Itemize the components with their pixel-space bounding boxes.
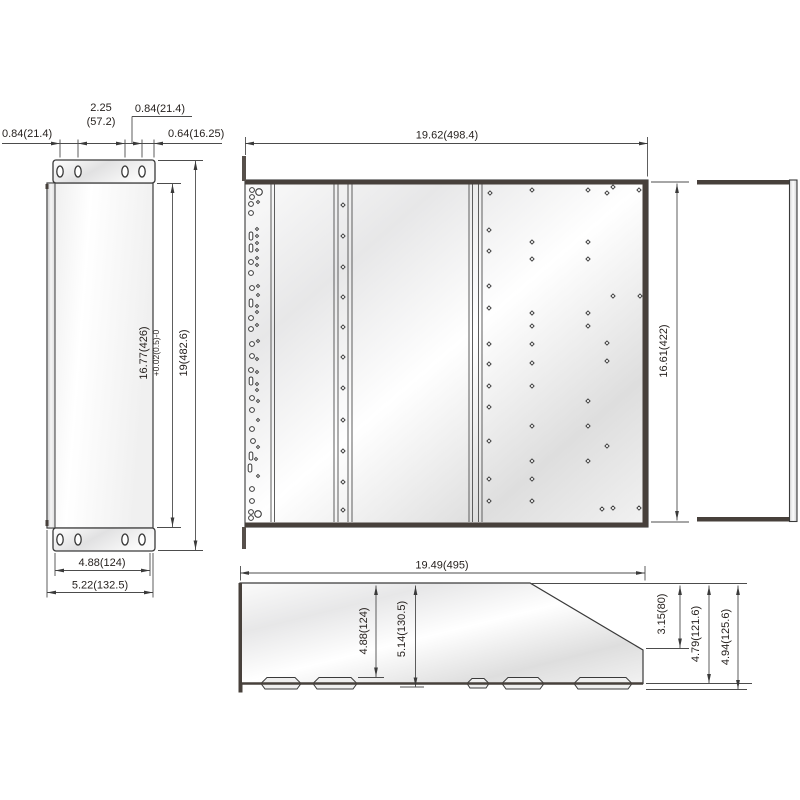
engineering-drawing-canvas: 0.84(21.4) 2.25 (57.2) 0.84(21.4) 0.64(1… [0, 0, 800, 800]
rail-hole [249, 202, 254, 207]
dim-opening-tolerance-label: +0.02(0.5)-0 [151, 329, 161, 376]
flange-slot-hole [122, 166, 128, 177]
rail-hole [249, 260, 254, 265]
rail-hole [249, 316, 254, 321]
dim-hole-pitch-label: 2.25 [90, 102, 111, 114]
rail-hole [249, 271, 254, 276]
rail-hole [250, 396, 255, 401]
profile-left-edge [239, 583, 243, 684]
rail-hole [249, 510, 254, 515]
dim-profile-mid-label: 5.14(130.5) [396, 601, 408, 657]
flange-slot-hole [57, 166, 63, 177]
front-right-edge [643, 180, 649, 527]
rail-hole [250, 188, 255, 193]
left-view-corner-notch-bottom [46, 520, 49, 526]
rail-hole-large [256, 189, 263, 196]
rail-slot [248, 464, 252, 472]
rail-hole [250, 286, 255, 291]
dim-profile-step-label: 3.15(80) [656, 594, 668, 635]
dim-front-height-label: 16.61(422) [658, 324, 670, 377]
rail-hole [249, 516, 254, 521]
rail-hole [250, 195, 255, 200]
rail-slot [249, 244, 253, 252]
rail-hole [249, 368, 254, 373]
rail-hole [250, 427, 255, 432]
profile-left-foot [239, 684, 243, 693]
dim-flange-width-label: 4.88(124) [78, 557, 125, 569]
dim-hole-pitch-mm-label: (57.2) [87, 116, 116, 128]
dim-opening-label: 16.77(426) [138, 326, 150, 379]
flange-slot-hole [139, 534, 145, 545]
rail-hole [250, 408, 255, 413]
dim-profile-inner-label: 4.88(124) [358, 607, 370, 654]
rail-slot [249, 452, 253, 460]
dim-profile-right-label: 4.79(121.6) [690, 606, 702, 662]
rail-hole [251, 439, 256, 444]
flange-slot-hole [75, 166, 81, 177]
rail-hole [250, 354, 255, 359]
rail-hole [249, 327, 254, 332]
front-left-tab-bottom [242, 527, 246, 549]
rail-hole [250, 342, 255, 347]
flange-slot-hole [57, 534, 63, 545]
front-top-edge [245, 180, 648, 185]
dim-profile-width-label: 19.49(495) [415, 560, 468, 572]
dim-overall-height-label: 19(482.6) [178, 329, 190, 376]
flange-slot-hole [75, 534, 81, 545]
dim-front-width-label: 19.62(498.4) [416, 130, 478, 142]
left-view-bend-strip [47, 183, 55, 528]
front-panel [245, 180, 648, 527]
dim-hole-top-label: 0.84(21.4) [135, 103, 185, 115]
channel-side-bar [790, 180, 798, 522]
dim-profile-overall-label: 4.94(125.6) [720, 609, 732, 665]
channel-top-edge [697, 180, 796, 185]
dim-hole-left-label: 0.84(21.4) [2, 128, 52, 140]
rail-slot [249, 299, 253, 307]
flange-slot-hole [139, 166, 145, 177]
dim-overall-width-label: 5.22(132.5) [72, 580, 128, 592]
rail-hole [250, 487, 255, 492]
front-bottom-edge [245, 523, 648, 528]
left-view-corner-notch-top [46, 184, 49, 189]
rail-slot [249, 232, 253, 240]
dim-hole-right-label: 0.64(16.25) [168, 128, 224, 140]
front-left-tab-top [242, 156, 246, 181]
front-view [242, 156, 648, 549]
rail-hole-large [255, 511, 262, 518]
rail-hole [249, 211, 254, 216]
channel-bottom-edge [697, 517, 796, 522]
rail-hole [250, 499, 255, 504]
flange-slot-hole [122, 534, 128, 545]
rail-slot [249, 377, 253, 385]
